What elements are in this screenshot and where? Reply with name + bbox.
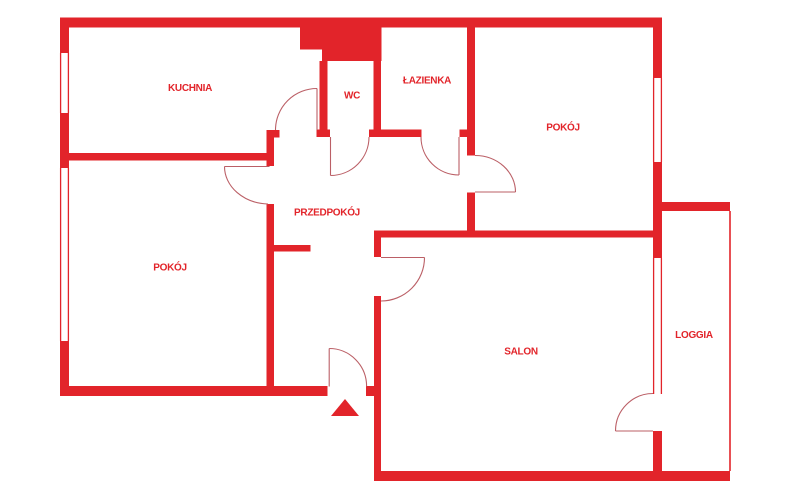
svg-text:KUCHNIA: KUCHNIA (168, 83, 212, 94)
svg-text:LOGGIA: LOGGIA (675, 330, 713, 341)
svg-text:WC: WC (344, 91, 360, 102)
svg-text:PRZEDPOKÓJ: PRZEDPOKÓJ (294, 206, 360, 219)
svg-text:POKÓJ: POKÓJ (153, 261, 187, 274)
svg-text:POKÓJ: POKÓJ (546, 121, 580, 134)
svg-text:SALON: SALON (504, 347, 538, 358)
svg-text:ŁAZIENKA: ŁAZIENKA (403, 76, 451, 87)
